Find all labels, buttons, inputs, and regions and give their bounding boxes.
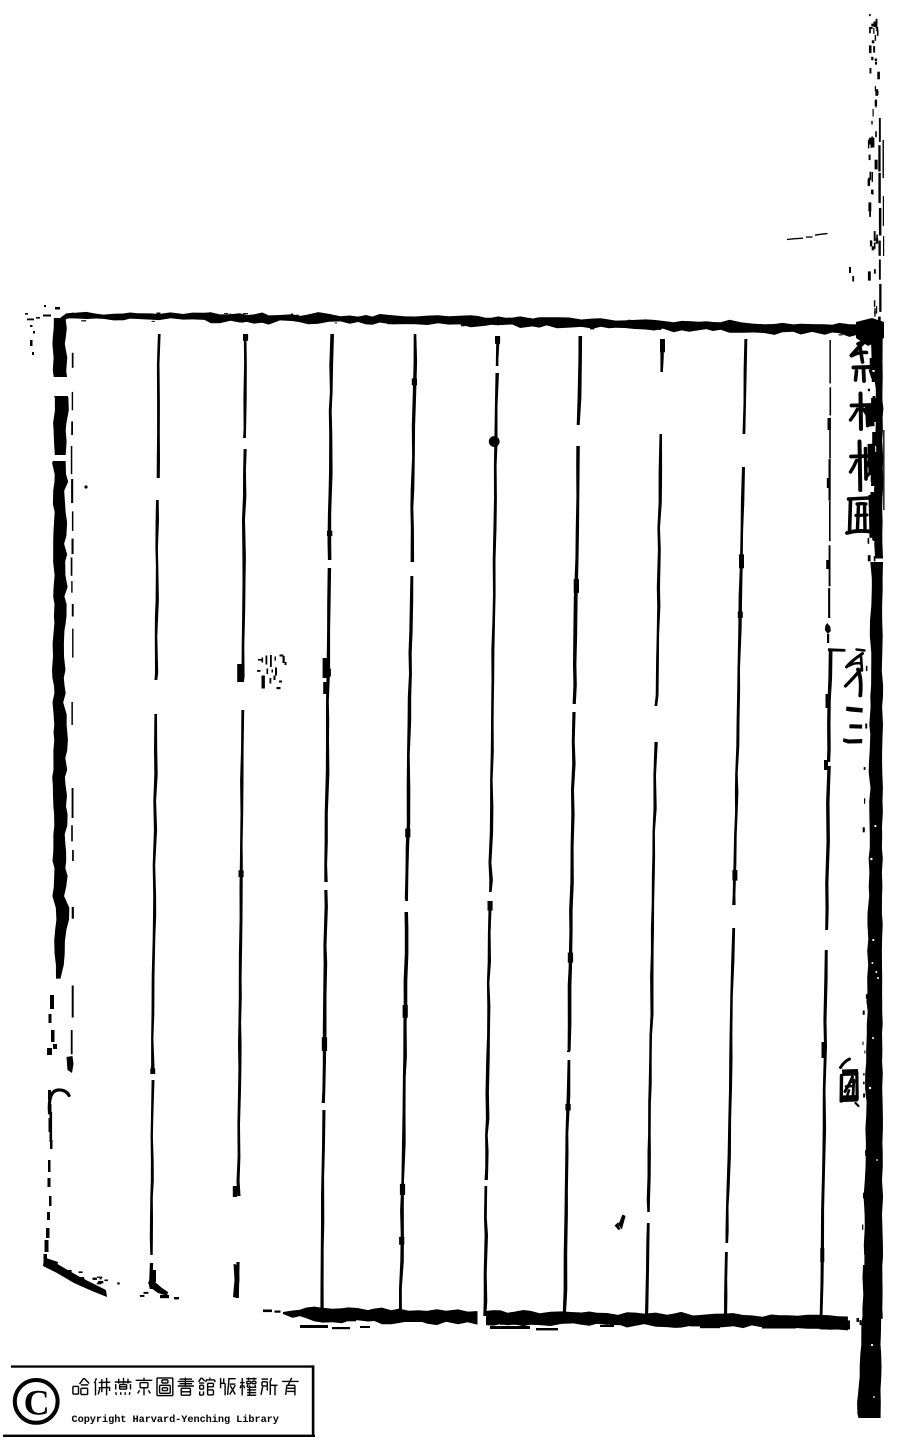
svg-text:Copyright Harvard-Yenching Lib: Copyright Harvard-Yenching Library [72, 1414, 279, 1426]
svg-text:C: C [24, 1383, 50, 1423]
